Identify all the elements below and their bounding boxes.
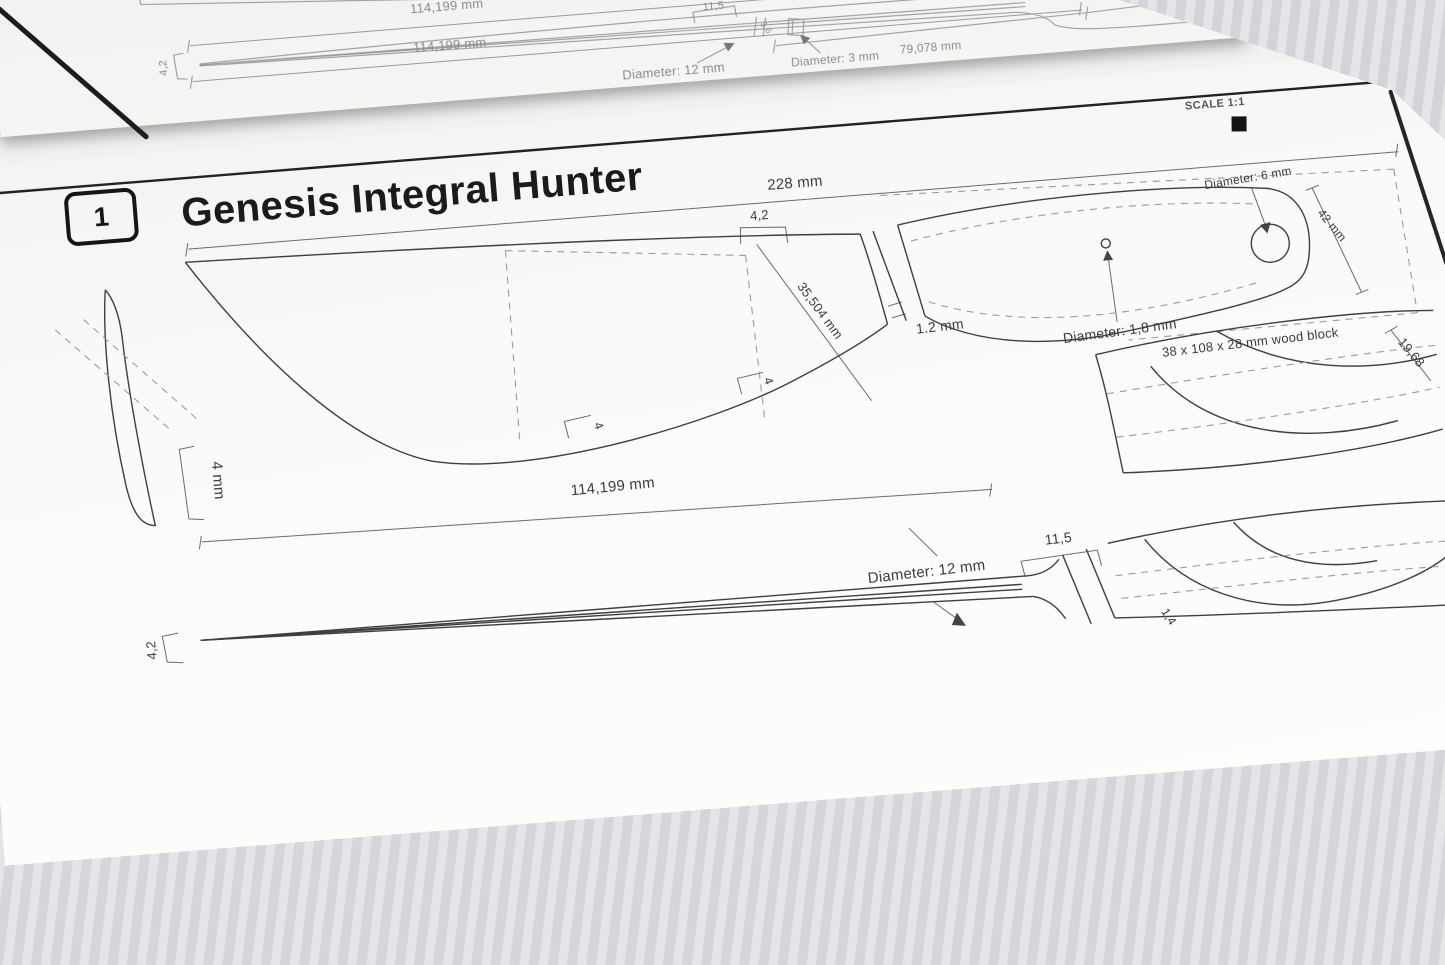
pin-hole (1101, 239, 1111, 249)
dim-bolster-width: 11,5 (1044, 529, 1073, 548)
dim-spine-step: 4,2 (749, 207, 769, 223)
upper-dim-tip: 4,2 (157, 59, 170, 76)
template-page-1: 1 Genesis Integral Hunter SCALE 1:1 228 … (0, 28, 1445, 866)
tang-centerlines (1115, 540, 1445, 598)
upper-dim-bolster: 11,5 (702, 0, 724, 13)
upper-info-box (130, 0, 548, 30)
scale-square-icon (1232, 116, 1247, 131)
template-number-badge: 1 (63, 187, 139, 247)
handle-top-view-centerlines (1105, 345, 1441, 437)
dim-tip-height: 4,2 (143, 640, 159, 660)
dim-spine-thickness: 4 mm (208, 461, 228, 501)
margin-blade-sliver (101, 287, 155, 528)
lanyard-hole (1250, 223, 1291, 264)
